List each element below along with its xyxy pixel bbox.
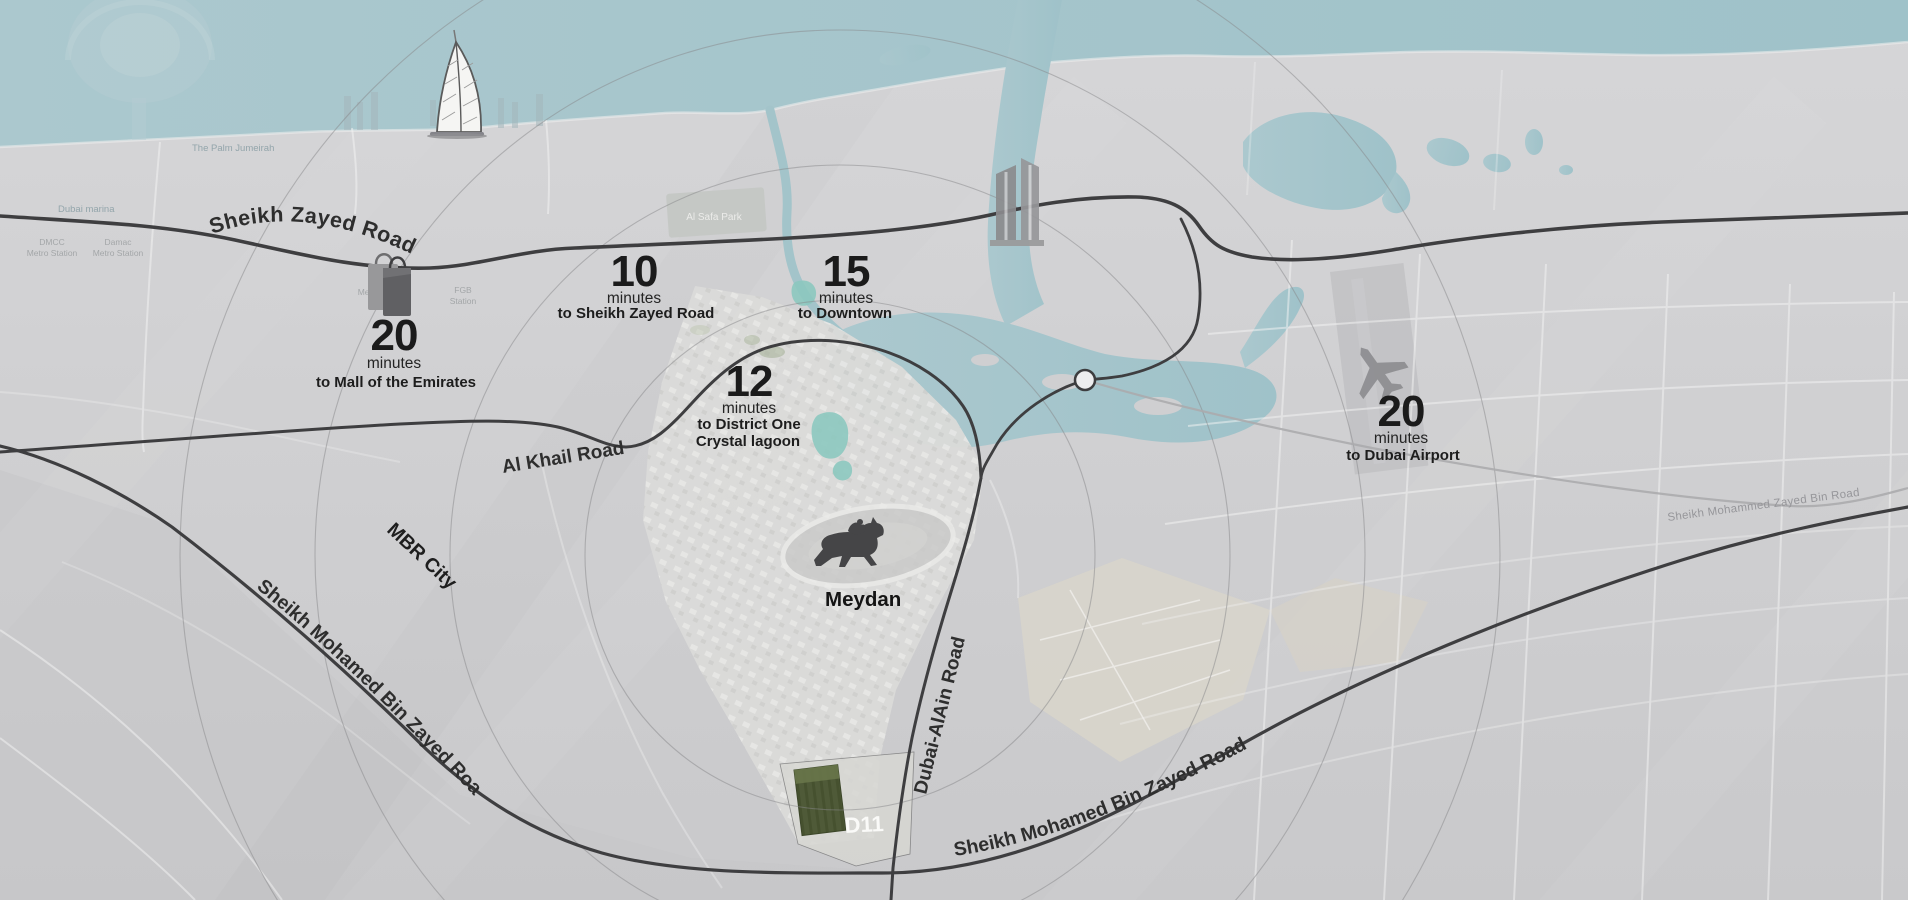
creek-roundabout [1075,370,1095,390]
dmcc-station-label-line1: DMCC [39,237,65,247]
marker-value: 20 [1378,387,1425,436]
marina-label: Dubai marina [58,204,115,215]
marker-value: 20 [371,311,418,360]
marker-value: 10 [611,247,658,296]
fgb-station-label-line1: FGB [454,285,472,295]
marker-value: 15 [823,247,870,296]
marker-destination: to Dubai Airport [1346,447,1460,464]
fgb-station-label-line2: Station [450,296,477,306]
marker-value: 12 [726,357,773,406]
marker-unit: minutes [367,355,422,372]
damac-station-label-line1: Damac [105,237,133,247]
damac-station-label-line2: Metro Station [93,248,144,258]
palm-label: The Palm Jumeirah [192,143,274,154]
d11-label: D11 [844,811,884,838]
marker-unit: minutes [722,400,777,417]
d11-farm-green [794,765,846,836]
map-canvas: The Palm Jumeirah Dubai marina DMCC Metr… [0,0,1908,900]
marker-destination: to Mall of the Emirates [316,374,476,391]
dubai-location-map: The Palm Jumeirah Dubai marina DMCC Metr… [0,0,1908,900]
marker-unit: minutes [1374,430,1429,447]
marker-destination: to Downtown [798,305,892,322]
al-safa-park-label: Al Safa Park [686,212,743,223]
marker-destination: to Sheikh Zayed Road [558,305,715,322]
meydan-label: Meydan [825,588,901,611]
marker-destination: to District One [697,416,800,433]
marker-destination-line2: Crystal lagoon [696,433,800,450]
dmcc-station-label-line2: Metro Station [27,248,78,258]
